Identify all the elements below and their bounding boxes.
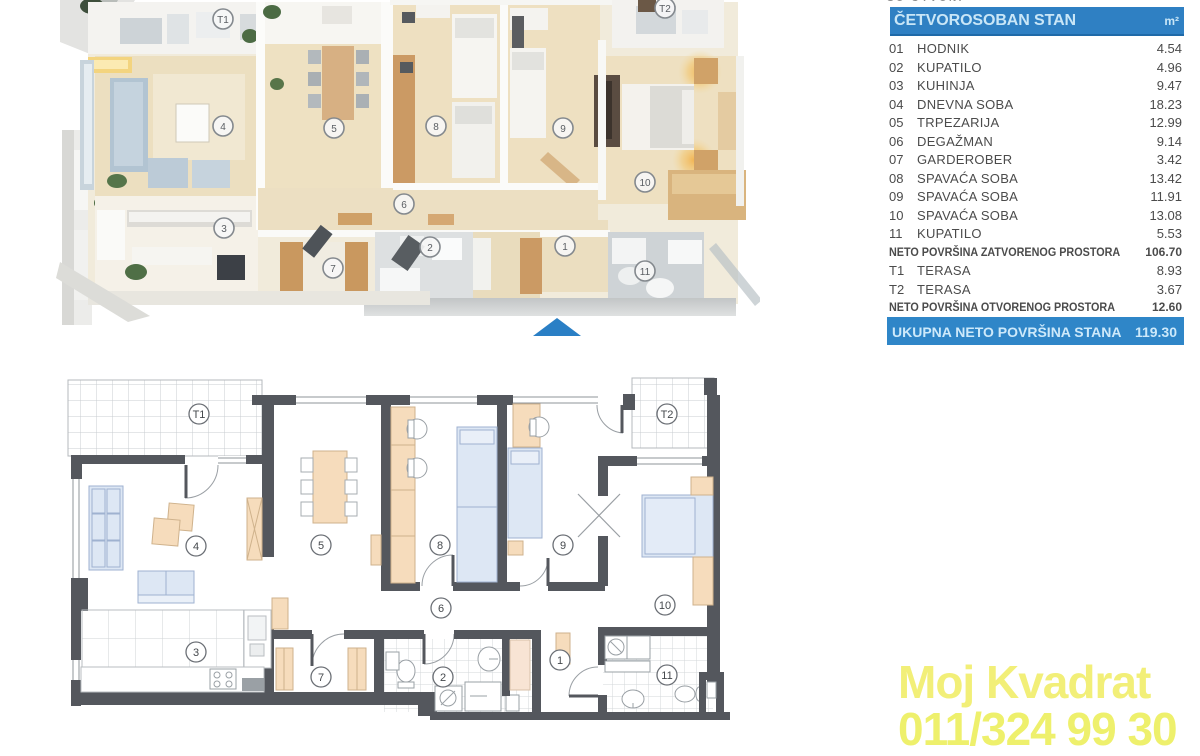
svg-text:5: 5	[331, 124, 337, 135]
svg-text:11: 11	[661, 670, 672, 682]
svg-text:2: 2	[440, 672, 446, 684]
svg-text:4: 4	[193, 541, 199, 553]
svg-text:3: 3	[221, 224, 227, 235]
svg-text:8: 8	[433, 122, 439, 133]
svg-text:11: 11	[640, 267, 651, 278]
svg-text:T2: T2	[659, 4, 671, 15]
svg-text:7: 7	[318, 672, 324, 684]
svg-text:T2: T2	[661, 409, 674, 421]
svg-text:T1: T1	[217, 15, 229, 26]
svg-text:6: 6	[401, 200, 407, 211]
svg-text:9: 9	[560, 540, 566, 552]
svg-text:6: 6	[438, 603, 444, 615]
svg-text:10: 10	[639, 178, 651, 189]
svg-text:9: 9	[560, 124, 566, 135]
svg-text:1: 1	[562, 242, 568, 253]
svg-text:3: 3	[193, 647, 199, 659]
svg-text:4: 4	[220, 122, 226, 133]
svg-text:7: 7	[330, 264, 336, 275]
svg-text:1: 1	[557, 655, 563, 667]
svg-text:T1: T1	[193, 409, 206, 421]
svg-text:5: 5	[318, 540, 324, 552]
svg-text:10: 10	[659, 600, 671, 612]
svg-text:2: 2	[427, 243, 433, 254]
svg-text:8: 8	[437, 540, 443, 552]
